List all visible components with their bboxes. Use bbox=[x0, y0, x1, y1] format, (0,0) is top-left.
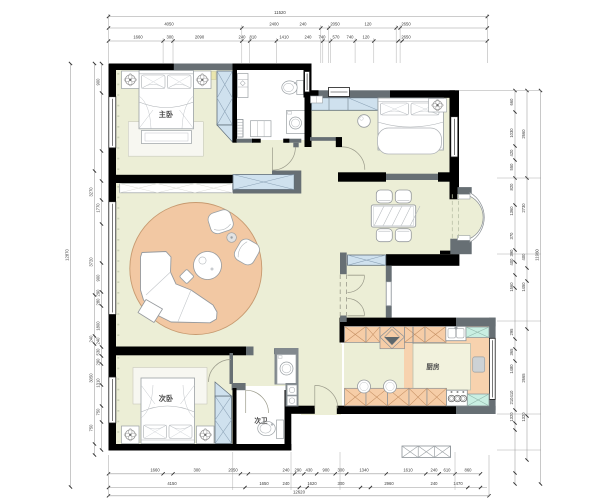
svg-text:厨房: 厨房 bbox=[426, 362, 440, 371]
svg-text:主卧: 主卧 bbox=[159, 110, 174, 119]
svg-text:2650: 2650 bbox=[401, 35, 411, 40]
svg-text:11960: 11960 bbox=[534, 249, 539, 261]
svg-text:1310: 1310 bbox=[95, 378, 100, 388]
svg-text:240: 240 bbox=[431, 467, 439, 472]
svg-text:430: 430 bbox=[306, 467, 314, 472]
svg-text:210: 210 bbox=[509, 397, 514, 405]
svg-text:1480: 1480 bbox=[509, 364, 514, 374]
svg-text:1770: 1770 bbox=[95, 203, 100, 213]
svg-text:750: 750 bbox=[95, 408, 100, 416]
svg-text:370: 370 bbox=[509, 232, 514, 240]
svg-text:240: 240 bbox=[283, 481, 291, 486]
svg-text:次卧: 次卧 bbox=[159, 394, 174, 403]
svg-text:3270: 3270 bbox=[88, 187, 93, 197]
svg-text:1800: 1800 bbox=[95, 321, 100, 331]
svg-text:900: 900 bbox=[95, 78, 100, 86]
svg-text:740: 740 bbox=[347, 35, 355, 40]
svg-text:280: 280 bbox=[95, 298, 100, 306]
svg-text:次卫: 次卫 bbox=[254, 416, 268, 425]
svg-text:1320: 1320 bbox=[521, 412, 526, 422]
svg-text:290: 290 bbox=[95, 289, 100, 297]
svg-text:240: 240 bbox=[300, 22, 308, 27]
svg-text:12870: 12870 bbox=[64, 249, 69, 261]
svg-text:820: 820 bbox=[509, 183, 514, 191]
svg-text:240: 240 bbox=[95, 337, 100, 345]
svg-text:1660: 1660 bbox=[133, 35, 143, 40]
svg-text:570: 570 bbox=[333, 35, 341, 40]
svg-text:2050: 2050 bbox=[330, 22, 340, 27]
svg-text:1610: 1610 bbox=[403, 467, 413, 472]
svg-text:300: 300 bbox=[338, 481, 346, 486]
svg-text:2090: 2090 bbox=[195, 35, 205, 40]
svg-text:300: 300 bbox=[338, 467, 346, 472]
svg-text:240: 240 bbox=[239, 35, 247, 40]
svg-text:2400: 2400 bbox=[269, 22, 279, 27]
svg-text:390: 390 bbox=[509, 249, 514, 257]
svg-text:610: 610 bbox=[444, 467, 452, 472]
svg-text:365: 365 bbox=[509, 348, 514, 356]
svg-text:300: 300 bbox=[194, 467, 202, 472]
svg-text:410: 410 bbox=[509, 390, 514, 398]
svg-text:3720: 3720 bbox=[88, 257, 93, 267]
svg-text:400: 400 bbox=[509, 258, 514, 266]
svg-text:420: 420 bbox=[509, 149, 514, 157]
svg-text:295: 295 bbox=[509, 328, 514, 336]
svg-text:2730: 2730 bbox=[521, 203, 526, 213]
svg-text:2660: 2660 bbox=[521, 129, 526, 139]
svg-text:550: 550 bbox=[509, 163, 514, 171]
svg-text:750: 750 bbox=[88, 424, 93, 432]
svg-text:12620: 12620 bbox=[293, 489, 306, 494]
svg-text:2665: 2665 bbox=[521, 373, 526, 383]
svg-text:290: 290 bbox=[295, 467, 303, 472]
svg-text:740: 740 bbox=[319, 35, 327, 40]
svg-text:3050: 3050 bbox=[88, 373, 93, 383]
svg-text:660: 660 bbox=[509, 98, 514, 106]
svg-text:1560: 1560 bbox=[509, 282, 514, 292]
svg-text:860: 860 bbox=[465, 467, 473, 472]
svg-text:2960: 2960 bbox=[384, 481, 394, 486]
svg-text:120: 120 bbox=[365, 22, 373, 27]
svg-text:1320: 1320 bbox=[509, 412, 514, 422]
svg-text:4150: 4150 bbox=[167, 481, 177, 486]
svg-text:1620: 1620 bbox=[307, 481, 317, 486]
svg-text:1650: 1650 bbox=[259, 481, 269, 486]
svg-text:4050: 4050 bbox=[164, 22, 174, 27]
svg-text:11520: 11520 bbox=[274, 10, 286, 15]
svg-text:1340: 1340 bbox=[359, 467, 369, 472]
svg-text:240: 240 bbox=[305, 35, 313, 40]
svg-text:1410: 1410 bbox=[279, 35, 289, 40]
svg-text:900: 900 bbox=[95, 274, 100, 282]
svg-text:1360: 1360 bbox=[509, 206, 514, 216]
svg-text:900: 900 bbox=[323, 467, 331, 472]
svg-text:120: 120 bbox=[363, 35, 371, 40]
svg-text:810: 810 bbox=[250, 35, 258, 40]
svg-text:2650: 2650 bbox=[401, 22, 411, 27]
svg-text:1030: 1030 bbox=[509, 128, 514, 138]
svg-text:1450: 1450 bbox=[521, 282, 526, 292]
svg-text:530: 530 bbox=[95, 348, 100, 356]
svg-text:240: 240 bbox=[88, 335, 93, 343]
svg-text:290: 290 bbox=[95, 358, 100, 366]
svg-text:240: 240 bbox=[431, 481, 439, 486]
svg-text:2050: 2050 bbox=[228, 467, 238, 472]
svg-text:240: 240 bbox=[283, 467, 291, 472]
svg-text:1660: 1660 bbox=[150, 467, 160, 472]
